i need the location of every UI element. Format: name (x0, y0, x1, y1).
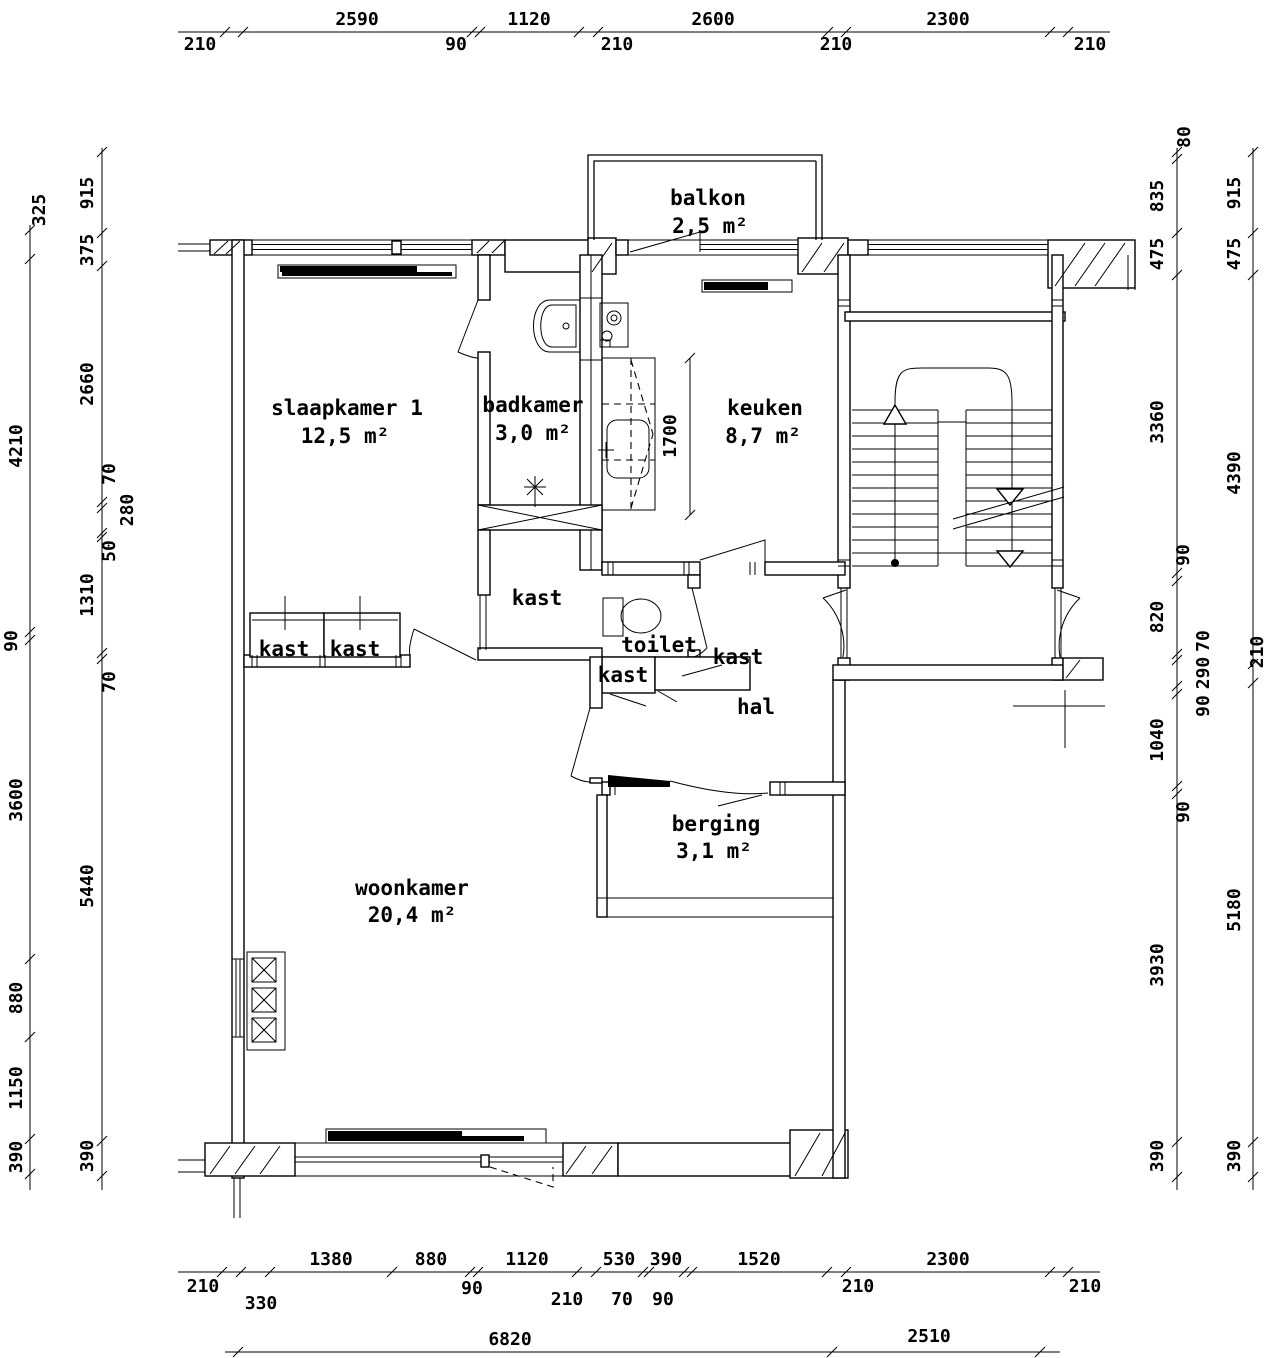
floor-plan-drawing: slaapkamer 1 12,5 m² badkamer 3,0 m² keu… (0, 0, 1280, 1358)
dim-label: 2300 (926, 1249, 969, 1270)
dim-label: 915 (1224, 177, 1245, 210)
room-label-hal: hal (737, 695, 775, 719)
windows (232, 232, 1048, 1187)
dim-label: 90 (1, 630, 22, 652)
dim-label: 390 (650, 1249, 683, 1270)
livingroom-door (571, 708, 590, 782)
stair-up-arrow-icon (884, 405, 906, 424)
room-label-kast-4: kast (598, 663, 649, 687)
dim-label: 325 (29, 194, 50, 227)
dim-label: 210 (1074, 34, 1107, 55)
walls (178, 238, 1135, 1218)
water-heater (600, 303, 628, 347)
dim-label: 390 (1224, 1140, 1245, 1173)
window-mullion (392, 241, 401, 254)
dim-label: 5180 (1224, 888, 1245, 931)
room-area-badkamer: 3,0 m² (495, 421, 571, 445)
window-mullion (481, 1155, 489, 1167)
radiator-bedroom (278, 265, 456, 278)
stair-walk-line (895, 368, 1012, 563)
front-door-right (1055, 588, 1080, 658)
dim-label: 70 (611, 1289, 633, 1310)
dim-label: 80 (1174, 126, 1195, 148)
dim-label: 210 (1247, 636, 1268, 669)
doors (410, 300, 1081, 794)
room-area-slaapkamer: 12,5 m² (301, 424, 390, 448)
dim-label: 1520 (737, 1249, 780, 1270)
dim-label: 330 (245, 1293, 278, 1314)
dim-label: 915 (77, 177, 98, 210)
openable-pane-mark (490, 1167, 553, 1187)
dim-label: 210 (1069, 1276, 1102, 1297)
dim-label: 2590 (335, 9, 378, 30)
dim-label: 290 (1193, 657, 1214, 690)
dim-label: 210 (820, 34, 853, 55)
dim-label: 3600 (6, 778, 27, 821)
dim-label: 2660 (77, 362, 98, 405)
dim-label: 475 (1147, 238, 1168, 271)
dim-label: 3930 (1147, 943, 1168, 986)
berging-door-leaf (608, 775, 670, 787)
dim-label: 2600 (691, 9, 734, 30)
dim-label: 820 (1147, 601, 1168, 634)
dim-label: 5440 (77, 864, 98, 907)
room-area-woonkamer: 20,4 m² (368, 903, 457, 927)
dim-label: 70 (1193, 630, 1214, 652)
room-label-kast-2: kast (330, 637, 381, 661)
dim-label: 90 (1173, 801, 1194, 823)
room-label-badkamer: badkamer (482, 393, 583, 417)
room-label-toilet: toilet (621, 633, 697, 657)
room-label-slaapkamer: slaapkamer 1 (271, 396, 423, 420)
dim-label: 210 (551, 1289, 584, 1310)
closet-door-right (658, 691, 677, 702)
room-label-kast-5: kast (713, 645, 764, 669)
dim-label: 530 (603, 1249, 636, 1270)
light-point-star (524, 476, 546, 507)
dim-label: 210 (187, 1276, 220, 1297)
room-label-berging: berging (672, 812, 761, 836)
dim-label: 390 (77, 1140, 98, 1173)
radiator-kitchen (702, 280, 792, 292)
dim-label: 390 (6, 1141, 27, 1174)
dim-label: 50 (99, 540, 120, 562)
kitchen-door (700, 540, 765, 562)
room-label-kast-1: kast (259, 637, 310, 661)
room-area-keuken: 8,7 m² (725, 424, 801, 448)
room-labels: slaapkamer 1 12,5 m² badkamer 3,0 m² keu… (259, 186, 803, 927)
room-label-kast-3: kast (512, 586, 563, 610)
bathroom-door (458, 300, 478, 358)
kitchen-counter (598, 358, 655, 510)
dim-label: 2510 (907, 1326, 950, 1347)
dim-label: 210 (184, 34, 217, 55)
dim-label: 1310 (77, 573, 98, 616)
room-label-balkon: balkon (670, 186, 746, 210)
dim-label: 880 (415, 1249, 448, 1270)
dim-label: 90 (445, 34, 467, 55)
dim-label-kitchen: 1700 (660, 414, 681, 457)
dim-label: 475 (1224, 238, 1245, 271)
radiator-livingroom (326, 1129, 546, 1143)
front-door-left (823, 588, 847, 658)
dim-label: 1150 (6, 1066, 27, 1109)
dim-label: 4210 (6, 424, 27, 467)
room-area-balkon: 2,5 m² (672, 214, 748, 238)
toilet-wc (603, 598, 661, 636)
room-area-berging: 3,1 m² (676, 839, 752, 863)
dim-label: 90 (461, 1278, 483, 1299)
bathroom-sink (534, 300, 581, 352)
dim-label: 6820 (488, 1329, 531, 1350)
room-label-woonkamer: woonkamer (355, 876, 469, 900)
dim-label: 3360 (1147, 400, 1168, 443)
dim-label: 280 (117, 494, 138, 527)
dim-label: 90 (652, 1289, 674, 1310)
dim-label: 2300 (926, 9, 969, 30)
dim-label: 4390 (1224, 451, 1245, 494)
dim-label: 70 (99, 671, 120, 693)
bathroom-duct-block (505, 240, 589, 272)
closet-door-left (610, 694, 646, 706)
dim-label: 375 (77, 234, 98, 267)
bedroom-door (410, 629, 477, 660)
dim-label: 1120 (505, 1249, 548, 1270)
dim-label: 835 (1147, 180, 1168, 213)
wall-hatching (210, 241, 1125, 1176)
dim-label: 1040 (1147, 718, 1168, 761)
dim-label: 1120 (507, 9, 550, 30)
floor-plan-page: slaapkamer 1 12,5 m² badkamer 3,0 m² keu… (0, 0, 1280, 1358)
berging-label-leader (718, 795, 762, 806)
stair-down-arrow-icon (997, 551, 1023, 567)
dim-label: 90 (1193, 695, 1214, 717)
dim-label: 390 (1147, 1140, 1168, 1173)
dim-label: 70 (99, 463, 120, 485)
stairwell (852, 368, 1064, 567)
room-label-keuken: keuken (727, 396, 803, 420)
dim-label: 210 (842, 1276, 875, 1297)
dim-label: 1380 (309, 1249, 352, 1270)
convector-heater (247, 952, 285, 1050)
stair-start-dot (891, 559, 899, 567)
dim-label: 880 (6, 982, 27, 1015)
dim-label: 210 (601, 34, 634, 55)
dim-label: 90 (1173, 544, 1194, 566)
